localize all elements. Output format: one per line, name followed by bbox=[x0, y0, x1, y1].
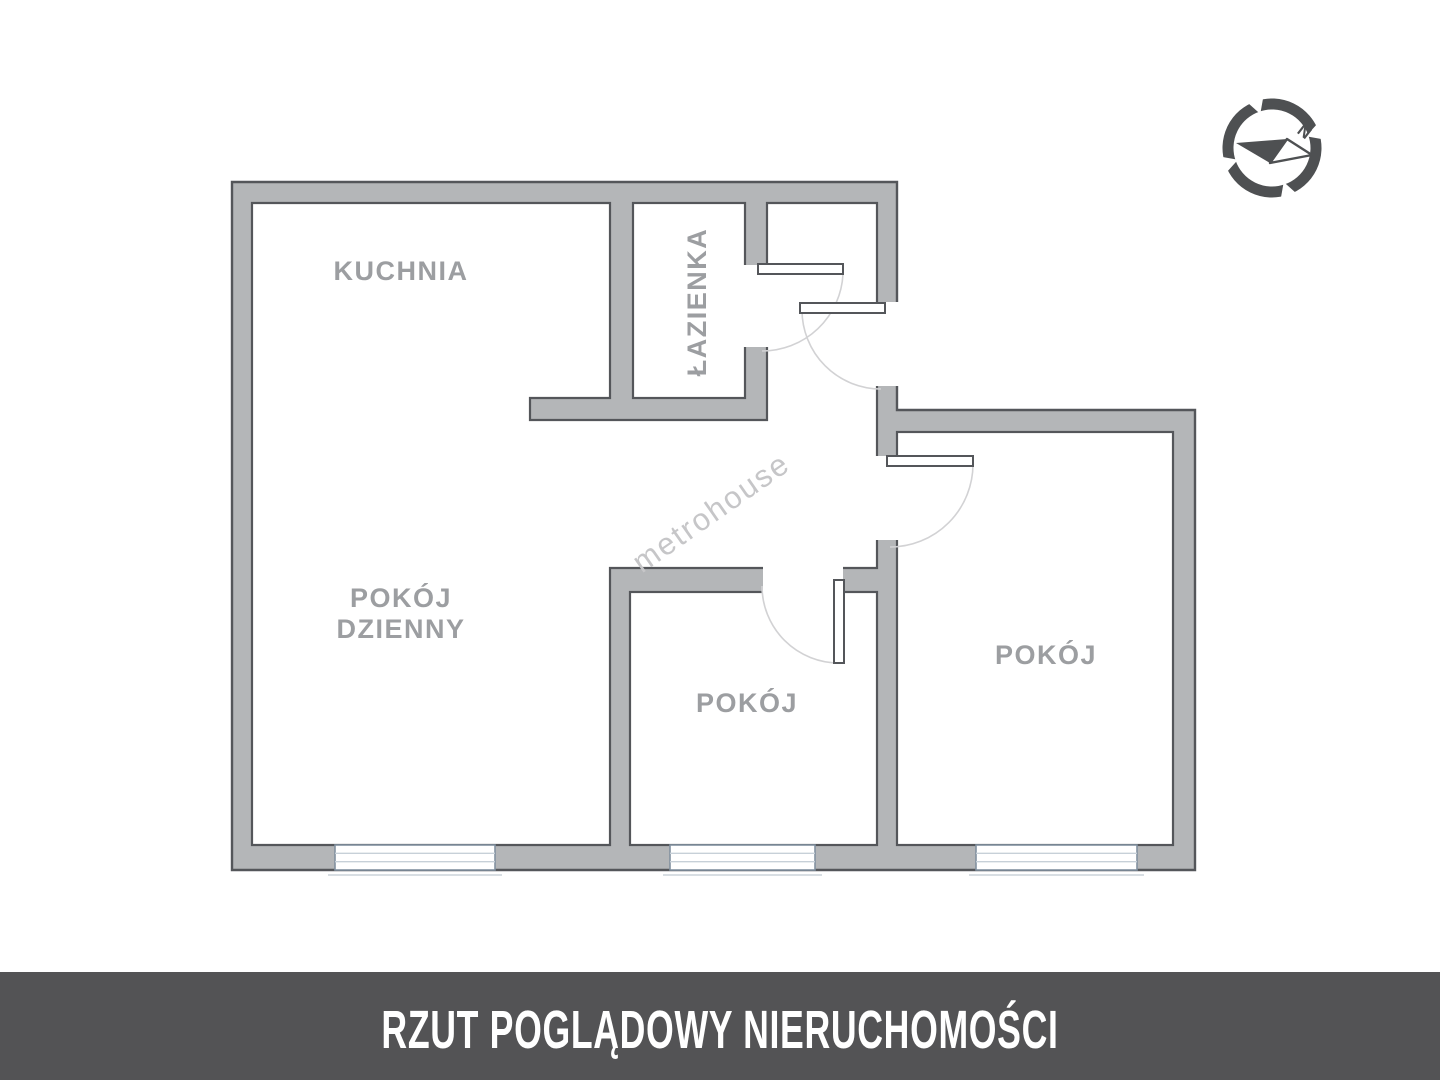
floor-plan-page: metrohouse KUCHNIA ŁAZIENKA POKÓJ DZIENN… bbox=[0, 0, 1440, 1080]
door-leaf bbox=[800, 303, 885, 313]
room-label-living-line1: POKÓJ bbox=[350, 582, 452, 613]
floor-plan-canvas: metrohouse KUCHNIA ŁAZIENKA POKÓJ DZIENN… bbox=[0, 0, 1440, 1080]
room-label-middle-room: POKÓJ bbox=[696, 687, 798, 718]
door-opening-middle-room bbox=[763, 566, 843, 594]
door-leaf bbox=[834, 580, 844, 663]
window-symbol-middle-room bbox=[663, 845, 822, 875]
footer-title: RZUT POGLĄDOWY NIERUCHOMOŚCI bbox=[381, 999, 1058, 1061]
room-label-bathroom: ŁAZIENKA bbox=[682, 228, 712, 377]
door-leaf bbox=[758, 264, 843, 274]
room-area-right-room bbox=[897, 432, 1173, 845]
door-leaf bbox=[887, 456, 973, 466]
door-opening-right-room bbox=[875, 456, 901, 540]
window-frame bbox=[670, 845, 815, 870]
window-symbol-living-room bbox=[328, 845, 502, 875]
door-opening-bathroom bbox=[743, 265, 769, 347]
compass-icon: N bbox=[1203, 79, 1340, 216]
window-frame bbox=[976, 845, 1137, 870]
door-opening-hall bbox=[875, 302, 901, 386]
room-label-right-room: POKÓJ bbox=[995, 639, 1097, 670]
footer-bar: RZUT POGLĄDOWY NIERUCHOMOŚCI bbox=[0, 972, 1440, 1080]
window-frame bbox=[335, 845, 495, 870]
room-label-kitchen: KUCHNIA bbox=[334, 256, 469, 286]
window-symbol-right-room bbox=[969, 845, 1144, 875]
room-label-living-line2: DZIENNY bbox=[336, 614, 465, 644]
